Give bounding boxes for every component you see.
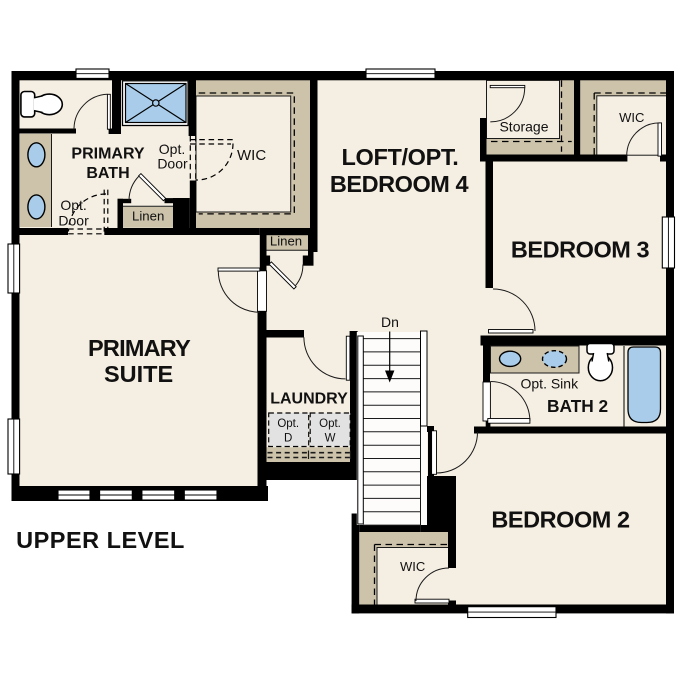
svg-text:LOFT/OPT.: LOFT/OPT. — [342, 144, 459, 170]
svg-text:WIC: WIC — [237, 147, 266, 164]
svg-text:PRIMARY: PRIMARY — [88, 335, 191, 361]
svg-text:WIC: WIC — [619, 110, 644, 125]
svg-text:Opt.: Opt. — [159, 141, 185, 157]
svg-text:WIC: WIC — [400, 559, 425, 574]
svg-text:LAUNDRY: LAUNDRY — [270, 391, 348, 408]
svg-text:Linen: Linen — [132, 209, 164, 224]
svg-text:BEDROOM 3: BEDROOM 3 — [511, 237, 650, 263]
svg-text:D: D — [284, 433, 292, 445]
svg-text:Door: Door — [58, 213, 89, 229]
svg-text:W: W — [325, 433, 336, 445]
svg-text:BATH 2: BATH 2 — [547, 396, 608, 416]
svg-text:Door: Door — [157, 156, 188, 172]
svg-text:UPPER LEVEL: UPPER LEVEL — [16, 527, 185, 553]
svg-text:Dn: Dn — [381, 314, 399, 330]
svg-text:Storage: Storage — [499, 118, 548, 134]
svg-text:Linen: Linen — [270, 233, 302, 248]
svg-text:BATH: BATH — [86, 165, 129, 182]
svg-text:Opt.: Opt. — [60, 197, 86, 213]
svg-text:Opt.: Opt. — [277, 418, 299, 430]
svg-text:BEDROOM 2: BEDROOM 2 — [491, 507, 630, 533]
svg-text:Opt.: Opt. — [319, 418, 341, 430]
svg-text:SUITE: SUITE — [104, 361, 173, 387]
svg-text:BEDROOM 4: BEDROOM 4 — [330, 171, 469, 197]
svg-text:PRIMARY: PRIMARY — [71, 145, 145, 162]
svg-text:Opt. Sink: Opt. Sink — [521, 375, 580, 391]
